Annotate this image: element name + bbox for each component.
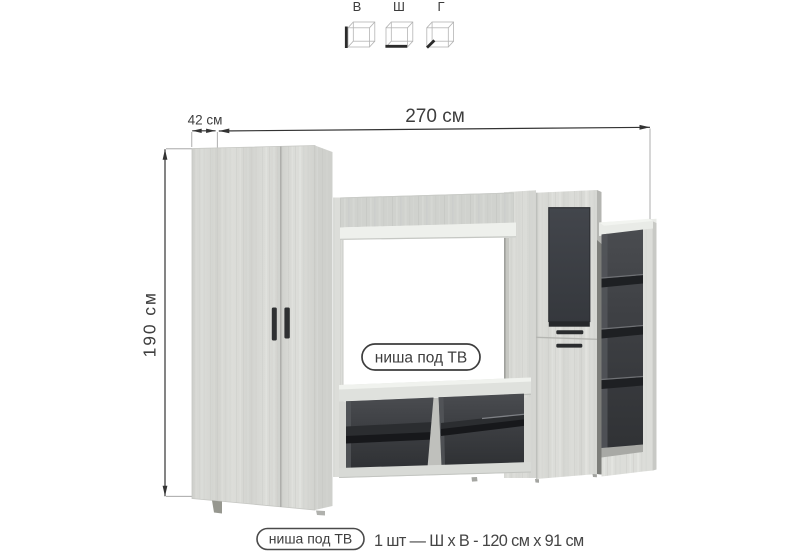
svg-text:ниша под ТВ: ниша под ТВ	[375, 350, 467, 367]
svg-text:1 шт — Ш х В - 120 см х 91 см: 1 шт — Ш х В - 120 см х 91 см	[374, 532, 584, 550]
svg-text:270 см: 270 см	[405, 106, 465, 127]
svg-text:ниша под ТВ: ниша под ТВ	[269, 531, 352, 547]
svg-text:42 см: 42 см	[188, 113, 223, 128]
svg-text:Г: Г	[437, 0, 444, 14]
svg-text:В: В	[353, 0, 362, 14]
svg-text:Ш: Ш	[393, 0, 405, 14]
svg-text:190 см: 190 см	[140, 291, 160, 357]
